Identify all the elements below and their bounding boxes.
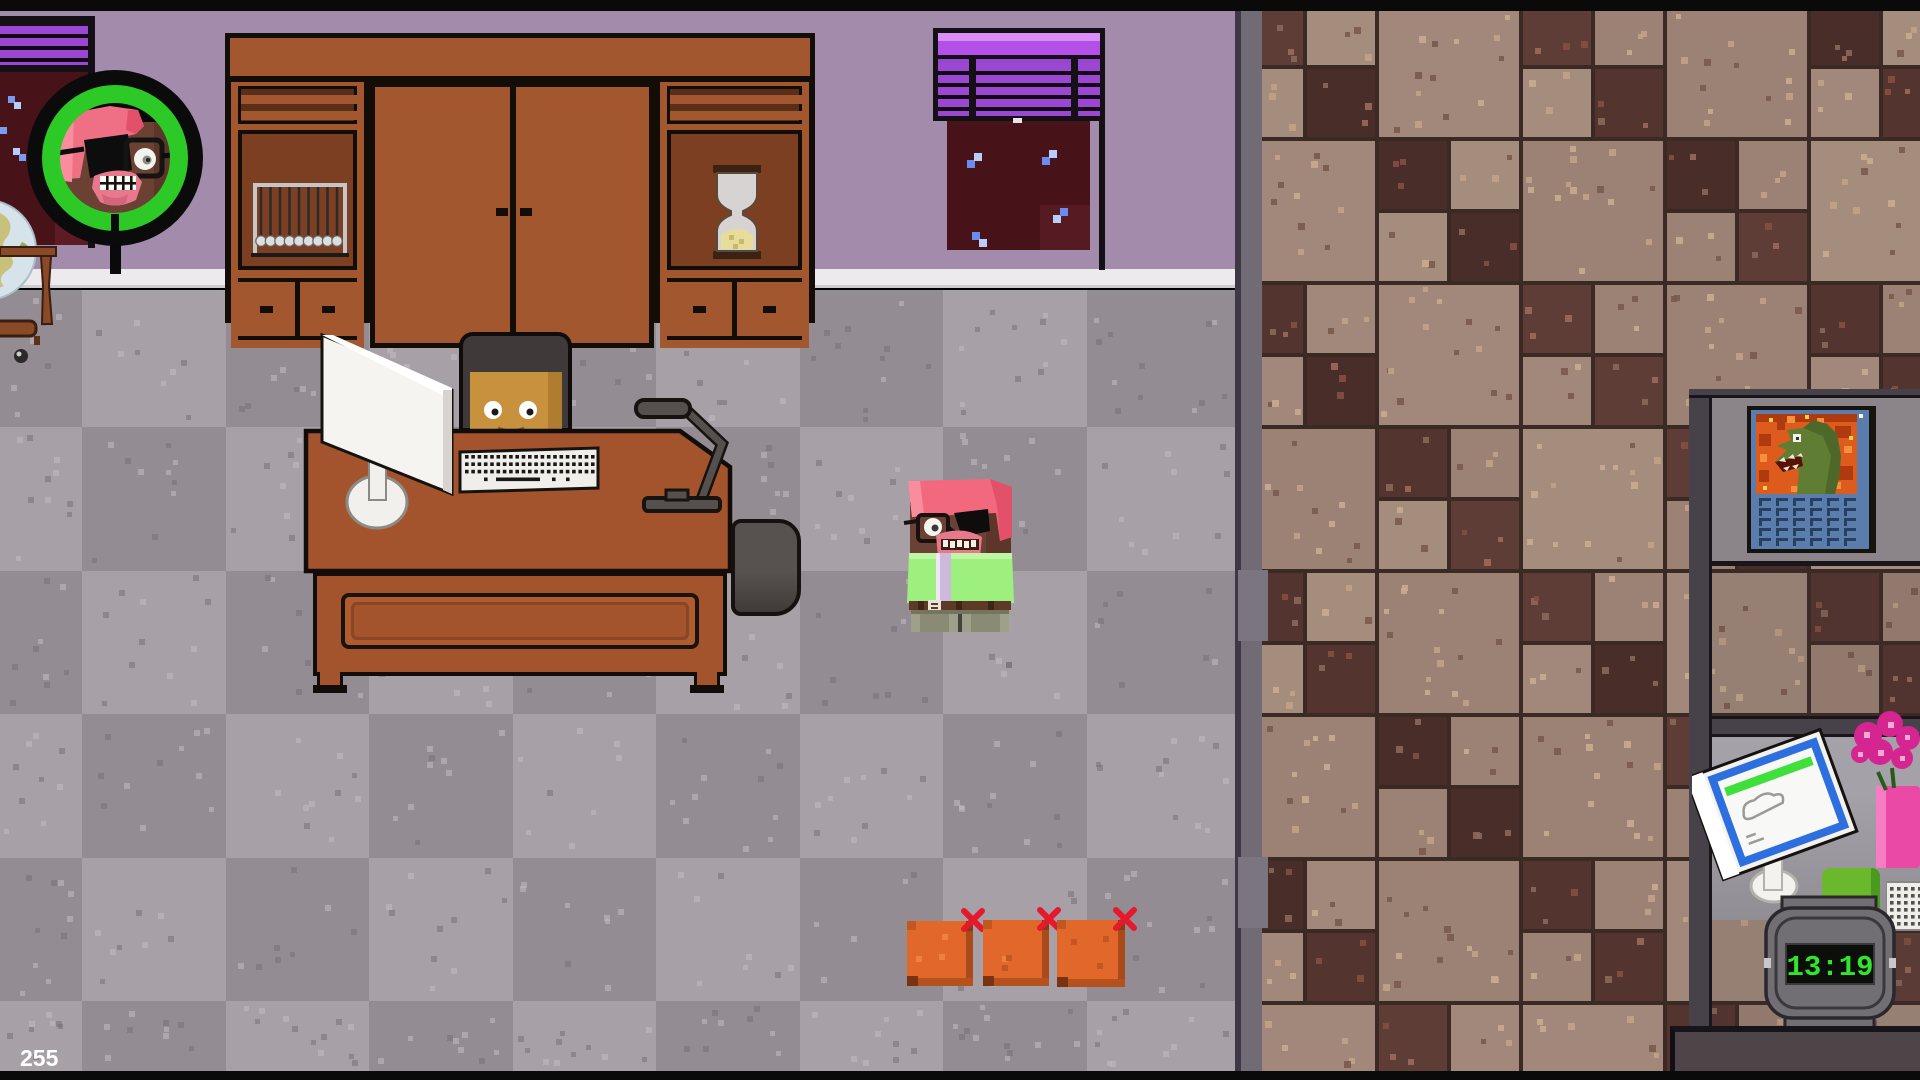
svg-text:13:19: 13:19 (1786, 951, 1873, 984)
